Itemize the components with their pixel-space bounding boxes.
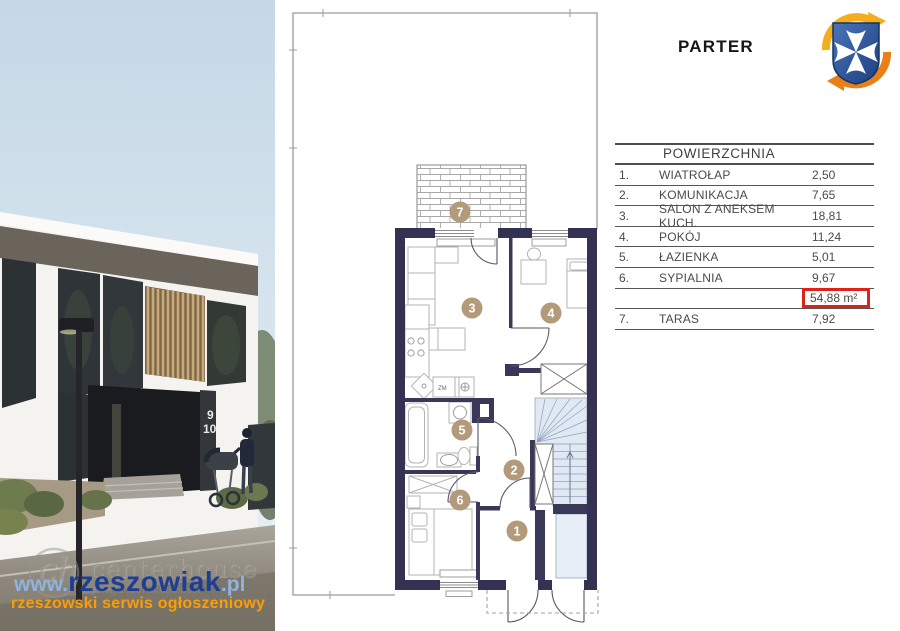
room-name: ŁAZIENKA bbox=[659, 250, 812, 264]
svg-text:2: 2 bbox=[511, 464, 518, 478]
washbasin bbox=[441, 455, 458, 466]
room-area: 11,24 bbox=[812, 230, 874, 244]
row-number: 5. bbox=[615, 250, 659, 264]
row-number: 4. bbox=[615, 230, 659, 244]
svg-text:6: 6 bbox=[457, 494, 464, 508]
room-area: 7,65 bbox=[812, 188, 874, 202]
radiator bbox=[437, 239, 495, 246]
washbasin-counter bbox=[437, 453, 461, 467]
terrace bbox=[417, 165, 526, 231]
sideboard bbox=[410, 328, 465, 350]
room-name: WIATROŁAP bbox=[659, 168, 812, 182]
bathroom-door bbox=[478, 418, 516, 456]
area-table-header: POWIERZCHNIA bbox=[615, 143, 874, 165]
single-bed bbox=[567, 259, 591, 308]
room-badge-2: 2 bbox=[504, 460, 525, 481]
furniture: ZM bbox=[405, 239, 591, 577]
radiator bbox=[440, 570, 477, 577]
corner-sink bbox=[411, 373, 436, 398]
interior-walls bbox=[405, 238, 587, 580]
building-photo: 9 10 bbox=[0, 0, 275, 631]
stove bbox=[408, 338, 424, 356]
kitchen-counter bbox=[405, 329, 429, 377]
entrance-door-left bbox=[508, 590, 538, 622]
table-row: 3. SALON Z ANEKSEM KUCH. 18,81 bbox=[615, 206, 874, 227]
windows bbox=[435, 231, 568, 597]
window-sill bbox=[446, 591, 472, 597]
room-badge-5: 5 bbox=[452, 420, 473, 441]
toilet bbox=[458, 448, 470, 465]
room-area: 2,50 bbox=[812, 168, 874, 182]
dishwasher-label: ZM bbox=[438, 386, 447, 392]
table-row: 6. SYPIALNIA 9,67 bbox=[615, 268, 874, 289]
pillow bbox=[412, 513, 427, 526]
toilet-tank bbox=[470, 447, 477, 465]
wardrobe bbox=[409, 476, 457, 493]
room-name: SALON Z ANEKSEM KUCH. bbox=[659, 202, 812, 230]
table-row: 5. ŁAZIENKA 5,01 bbox=[615, 247, 874, 268]
listing-image: 9 10 bbox=[0, 0, 900, 631]
desk bbox=[521, 260, 546, 284]
salon-furniture bbox=[408, 239, 495, 350]
svg-text:3: 3 bbox=[469, 302, 476, 316]
row-number: 7. bbox=[615, 312, 659, 326]
kitchen-sink bbox=[461, 383, 469, 391]
row-number: 1. bbox=[615, 168, 659, 182]
kitchen-tall-unit bbox=[405, 305, 429, 329]
staircase bbox=[535, 398, 587, 578]
room-area: 7,92 bbox=[812, 312, 874, 326]
washing-machine bbox=[449, 402, 471, 423]
table-row: 1. WIATROŁAP 2,50 bbox=[615, 165, 874, 186]
bathtub bbox=[405, 403, 428, 467]
desk-chair bbox=[528, 248, 541, 260]
pillow bbox=[570, 262, 588, 270]
bedroom-door bbox=[448, 472, 478, 502]
wood-slats-panel bbox=[145, 286, 205, 382]
plot-boundary bbox=[289, 9, 597, 599]
terrace-door bbox=[471, 238, 497, 264]
room-badge-6: 6 bbox=[450, 490, 471, 511]
svg-text:4: 4 bbox=[548, 307, 555, 321]
page-title: PARTER bbox=[678, 37, 754, 57]
pokoj-furniture bbox=[521, 239, 591, 308]
entrance-door-right bbox=[552, 590, 584, 622]
bedroom-furniture bbox=[407, 476, 477, 577]
rzeszow-crest-logo bbox=[818, 8, 894, 92]
pokoj-door bbox=[511, 328, 549, 366]
pedestrian-head bbox=[242, 428, 252, 438]
house-footprint bbox=[395, 228, 597, 590]
room-name: POKÓJ bbox=[659, 230, 812, 244]
pillow bbox=[412, 529, 427, 542]
doors bbox=[448, 238, 598, 622]
crest-icon bbox=[818, 8, 894, 92]
room-name: KOMUNIKACJA bbox=[659, 188, 812, 202]
entrance-porch bbox=[487, 590, 598, 613]
nightstand bbox=[407, 496, 420, 508]
room-badge-1: 1 bbox=[507, 521, 528, 542]
area-table: POWIERZCHNIA 1. WIATROŁAP 2,50 2. KOMUNI… bbox=[615, 143, 874, 330]
svg-text:1: 1 bbox=[514, 525, 521, 539]
hall-door bbox=[500, 478, 530, 508]
total-area-highlight: 54,88 m² bbox=[802, 288, 870, 308]
svg-text:7: 7 bbox=[457, 206, 464, 220]
building-render: 9 10 bbox=[0, 0, 275, 631]
room-badge-4: 4 bbox=[541, 303, 562, 324]
unit-number-9: 9 bbox=[207, 408, 214, 422]
bathroom-fixtures bbox=[405, 402, 477, 467]
room-area: 18,81 bbox=[812, 209, 874, 223]
room-number-badges: 1 2 3 4 5 6 7 bbox=[450, 202, 562, 542]
unit-number-10: 10 bbox=[203, 422, 217, 436]
sofa bbox=[408, 247, 458, 263]
svg-text:5: 5 bbox=[459, 424, 466, 438]
stair-landing bbox=[556, 514, 587, 578]
table-row: 7. TARAS 7,92 bbox=[615, 309, 874, 330]
room-name: SYPIALNIA bbox=[659, 271, 812, 285]
table-row: 4. POKÓJ 11,24 bbox=[615, 227, 874, 248]
bed bbox=[409, 509, 472, 575]
room-name: TARAS bbox=[659, 312, 812, 326]
table-row-total: 54,88 m² bbox=[615, 289, 874, 310]
room-area: 5,01 bbox=[812, 250, 874, 264]
room-badge-3: 3 bbox=[462, 298, 483, 319]
row-number: 2. bbox=[615, 188, 659, 202]
row-number: 6. bbox=[615, 271, 659, 285]
kitchen-counter-2 bbox=[433, 377, 474, 397]
row-number: 3. bbox=[615, 209, 659, 223]
room-badge-7: 7 bbox=[450, 202, 471, 223]
exterior-walls bbox=[395, 228, 597, 590]
radiator bbox=[532, 239, 566, 246]
kitchen-annex: ZM bbox=[405, 305, 474, 399]
total-area: 54,88 m² bbox=[812, 288, 874, 308]
room-area: 9,67 bbox=[812, 271, 874, 285]
